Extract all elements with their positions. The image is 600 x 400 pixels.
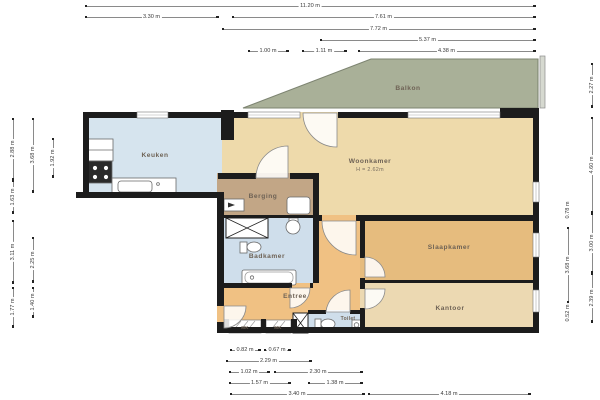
room-label-balkon: Balkon bbox=[395, 85, 420, 92]
toilet-bowl-icon bbox=[247, 242, 261, 252]
dimension: 3.30 m bbox=[85, 13, 218, 21]
bathroom-sink-icon bbox=[286, 220, 300, 234]
dimension: 1.77 m bbox=[9, 287, 17, 327]
dimension-label: 1.02 m bbox=[239, 369, 259, 375]
stove-icon bbox=[88, 161, 112, 183]
dimension-label: 3.68 m bbox=[30, 145, 36, 165]
dimension: 2.30 m bbox=[274, 368, 362, 376]
dimension-label: 4.60 m bbox=[589, 155, 595, 175]
dimension: 2.27 m bbox=[588, 63, 596, 107]
room-label-meterkast: MK bbox=[241, 325, 249, 330]
dimension: 7.72 m bbox=[222, 25, 535, 33]
boiler-icon bbox=[287, 197, 310, 214]
balkon-floor bbox=[243, 59, 538, 108]
dimension-label: 2.27 m bbox=[589, 75, 595, 95]
dimension-label: 5.37 m bbox=[417, 37, 437, 43]
room-label-meterkast: MK bbox=[274, 325, 282, 330]
dimension-label: 1.57 m bbox=[249, 380, 269, 386]
dimension: 2.39 m bbox=[588, 273, 596, 322]
room-label-berging: Berging bbox=[249, 193, 278, 200]
window-icon bbox=[533, 233, 539, 257]
dimension-label: 0.52 m bbox=[565, 302, 571, 322]
window-icon bbox=[408, 112, 500, 118]
dimension: 0.67 m bbox=[264, 346, 290, 354]
wc-sink-bowl bbox=[354, 323, 359, 328]
kitchen-sink-icon bbox=[118, 181, 152, 192]
floorplan-drawing: Keuken Woonkamer H = 2.62m Balkon Bergin… bbox=[0, 0, 600, 400]
dimension: 3.68 m bbox=[29, 118, 37, 192]
dimension: 4.18 m bbox=[368, 390, 530, 398]
dimension-label: 7.72 m bbox=[368, 26, 388, 32]
dimension-label: 1.00 m bbox=[258, 48, 278, 54]
dimension: 3.00 m bbox=[588, 213, 596, 273]
dimension-label: 0.82 m bbox=[235, 347, 255, 353]
burner-icon bbox=[93, 175, 97, 179]
dimension-label: 1.38 m bbox=[325, 380, 345, 386]
room-label-kantoor: Kantoor bbox=[435, 305, 464, 312]
balkon-railing bbox=[540, 56, 545, 108]
window-icon bbox=[533, 182, 539, 202]
dimension: 3.68 m bbox=[564, 227, 572, 303]
dimension-label: 3.30 m bbox=[141, 14, 161, 20]
window-icon bbox=[533, 290, 539, 312]
dimension-label: 1.11 m bbox=[314, 48, 334, 54]
dimension: 3.11 m bbox=[9, 220, 17, 283]
dimension: 1.00 m bbox=[248, 47, 288, 55]
toilet-tank-icon bbox=[240, 242, 247, 253]
dimension: 1.92 m bbox=[49, 138, 57, 177]
dimension-label: 2.30 m bbox=[308, 369, 328, 375]
dimension: 0.78 m bbox=[564, 202, 572, 218]
dimension: 1.57 m bbox=[229, 379, 290, 387]
faucet-icon bbox=[157, 183, 160, 186]
dimension-label: 1.63 m bbox=[10, 186, 16, 206]
burner-icon bbox=[93, 166, 97, 170]
dimension: 2.25 m bbox=[29, 237, 37, 282]
room-label-toilet: Toilet bbox=[341, 316, 356, 322]
dimension: 1.63 m bbox=[9, 180, 17, 213]
dimension: 1.11 m bbox=[302, 47, 346, 55]
burner-icon bbox=[104, 166, 108, 170]
dimension: 7.61 m bbox=[232, 13, 535, 21]
dimension-label: 1.77 m bbox=[10, 297, 16, 317]
dimension: 5.37 m bbox=[320, 36, 535, 44]
dimension-label: 3.00 m bbox=[589, 233, 595, 253]
dimension: 4.38 m bbox=[358, 47, 535, 55]
dimension: 1.40 m bbox=[29, 287, 37, 317]
dimension-label: 3.40 m bbox=[287, 391, 307, 397]
dimension: 3.40 m bbox=[230, 390, 364, 398]
burner-icon bbox=[104, 175, 108, 179]
dimension: 2.88 m bbox=[9, 118, 17, 180]
room-label-woonkamer: Woonkamer bbox=[349, 158, 392, 165]
window-icon bbox=[137, 112, 168, 118]
dimension: 0.52 m bbox=[564, 303, 572, 322]
dimension-label: 0.78 m bbox=[565, 200, 571, 220]
room-label-badkamer: Badkamer bbox=[249, 253, 285, 260]
dimension-label: 3.68 m bbox=[565, 255, 571, 275]
dimension-label: 2.29 m bbox=[258, 358, 278, 364]
dimension: 0.82 m bbox=[230, 346, 260, 354]
dimension-label: 4.18 m bbox=[439, 391, 459, 397]
drain-icon bbox=[250, 276, 253, 279]
dimension-label: 1.40 m bbox=[30, 292, 36, 312]
dimension: 1.38 m bbox=[308, 379, 362, 387]
room-label-entree: Entree bbox=[283, 293, 307, 300]
dimension-label: 2.88 m bbox=[10, 139, 16, 159]
dimension-label: 2.39 m bbox=[589, 287, 595, 307]
room-note-woonkamer: H = 2.62m bbox=[356, 167, 384, 173]
dimension: 2.29 m bbox=[226, 357, 311, 365]
dimension-label: 3.11 m bbox=[10, 242, 16, 262]
dimension-label: 4.38 m bbox=[436, 48, 456, 54]
dimension-label: 0.67 m bbox=[267, 347, 287, 353]
dimension-label: 1.92 m bbox=[50, 147, 56, 167]
dimension: 11.20 m bbox=[85, 2, 535, 10]
window-icon bbox=[248, 112, 300, 118]
dimension: 1.02 m bbox=[229, 368, 269, 376]
room-label-keuken: Keuken bbox=[141, 152, 168, 159]
dimension-label: 11.20 m bbox=[299, 3, 322, 9]
room-label-slaapkamer: Slaapkamer bbox=[428, 244, 471, 251]
dimension-label: 2.25 m bbox=[30, 249, 36, 269]
dimension-label: 7.61 m bbox=[373, 14, 393, 20]
dimension: 4.60 m bbox=[588, 117, 596, 213]
floorplan-canvas: Keuken Woonkamer H = 2.62m Balkon Bergin… bbox=[0, 0, 600, 400]
